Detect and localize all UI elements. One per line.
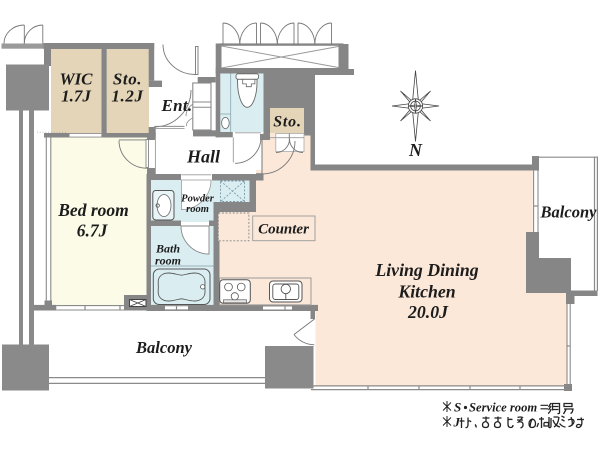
svg-text:Service room: Service room: [469, 401, 537, 415]
svg-text:Bed room: Bed room: [57, 200, 129, 220]
svg-text:Living Dining: Living Dining: [374, 260, 478, 280]
svg-text:S: S: [454, 400, 461, 415]
svg-text:Balcony: Balcony: [540, 203, 598, 222]
svg-text:Counter: Counter: [258, 222, 309, 238]
svg-text:Hall: Hall: [186, 147, 220, 167]
svg-text:Powder: Powder: [181, 194, 215, 205]
svg-text:Balcony: Balcony: [135, 338, 193, 357]
svg-text:1.2J: 1.2J: [111, 87, 143, 106]
svg-text:room: room: [186, 204, 209, 215]
svg-text:N: N: [408, 140, 423, 160]
svg-text:1.7J: 1.7J: [61, 87, 91, 106]
svg-text:6.7J: 6.7J: [77, 221, 109, 241]
svg-text:room: room: [155, 254, 181, 268]
svg-text:Ent.: Ent.: [161, 96, 193, 115]
svg-text:20.0J: 20.0J: [407, 302, 449, 322]
svg-text:J: J: [453, 415, 461, 430]
svg-text:Kitchen: Kitchen: [397, 282, 455, 302]
svg-text:Sto.: Sto.: [273, 114, 302, 131]
